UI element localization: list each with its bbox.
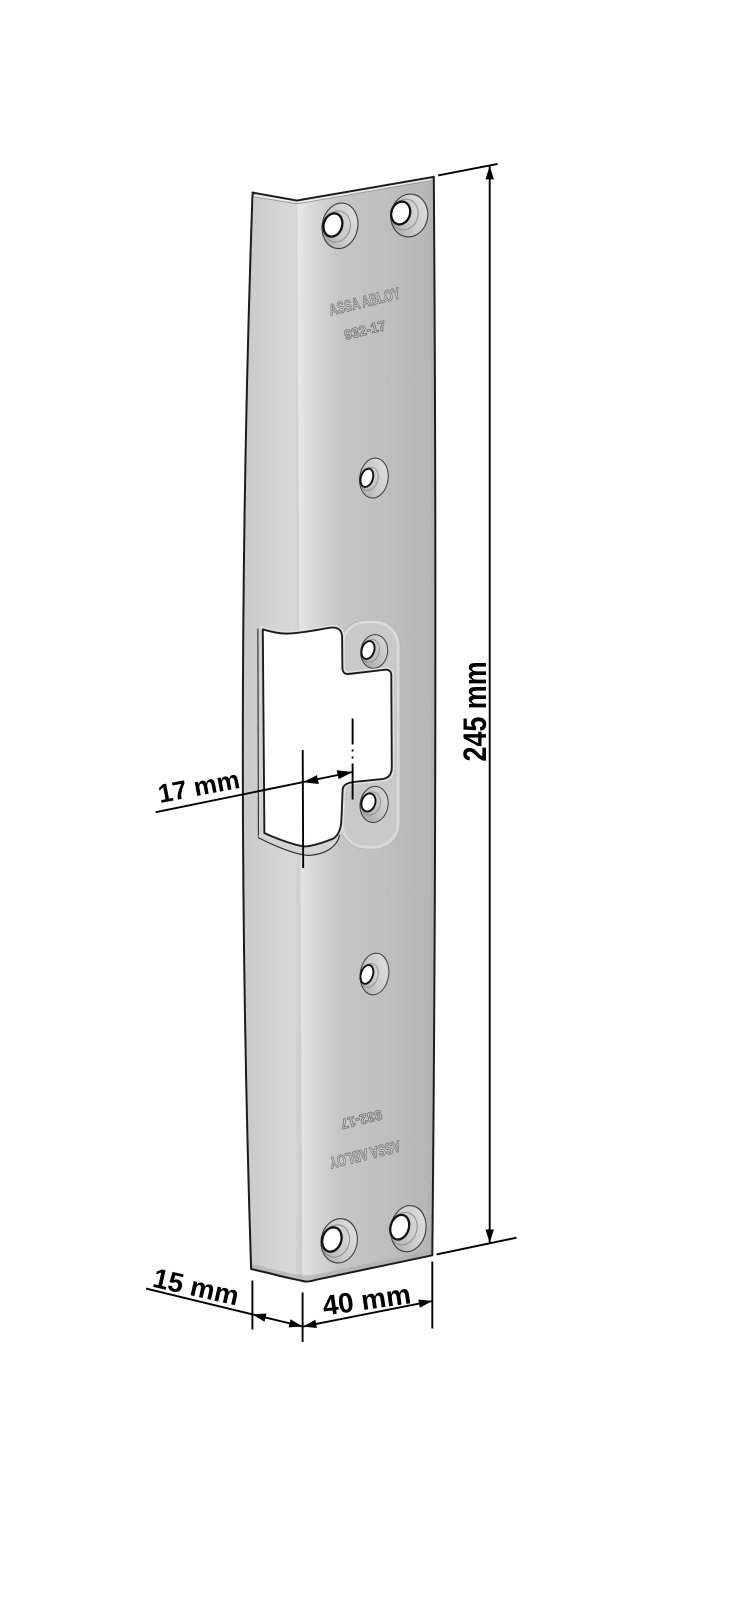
- svg-text:17 mm: 17 mm: [156, 764, 243, 809]
- svg-text:15 mm: 15 mm: [150, 1262, 242, 1311]
- svg-text:40 mm: 40 mm: [321, 1278, 413, 1321]
- svg-text:245 mm: 245 mm: [458, 661, 494, 761]
